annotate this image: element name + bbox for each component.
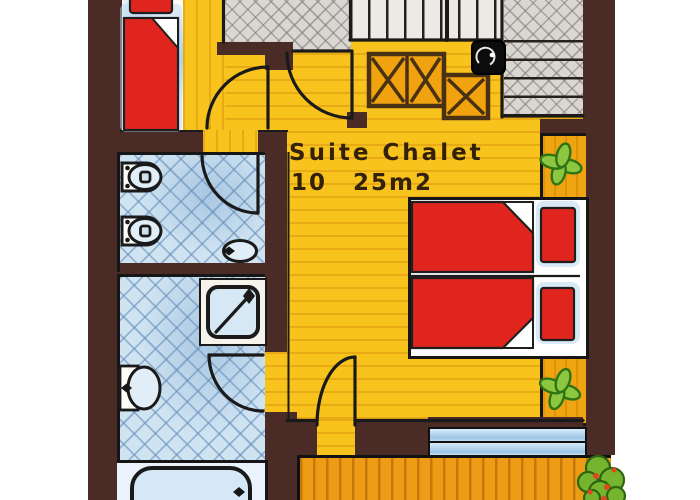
room-number: 10 (291, 170, 327, 196)
suite-subtitle: 10 25m2 (291, 170, 433, 196)
wardrobe-icon (369, 54, 488, 118)
shower-icon (200, 279, 266, 345)
plan-linework (0, 0, 700, 500)
bush-icon (578, 456, 625, 500)
door-hallway-icon (207, 67, 268, 128)
stove-icon (472, 41, 505, 74)
single-bed-icon (120, 0, 182, 132)
plant-icon (538, 367, 582, 411)
floor-plan: Suite Chalet 10 25m2 (0, 0, 700, 500)
washbasin-wc-icon (223, 241, 257, 262)
toilet-icon (122, 163, 161, 191)
bathtub-icon (132, 468, 250, 500)
washbasin-icon (120, 366, 160, 410)
pillow-icon (541, 288, 574, 340)
door-shower-room-icon (209, 355, 263, 411)
door-wc-icon (202, 155, 258, 213)
room-area: 25m2 (353, 170, 433, 196)
door-balcony-icon (317, 357, 355, 425)
bidet-icon (122, 217, 161, 245)
plant-icon (539, 142, 583, 186)
suite-title: Suite Chalet (289, 140, 484, 166)
double-bed-icon (411, 201, 580, 348)
door-suite-entrance-icon (287, 53, 352, 118)
pillow-icon (130, 0, 172, 13)
pillow-icon (541, 208, 575, 262)
